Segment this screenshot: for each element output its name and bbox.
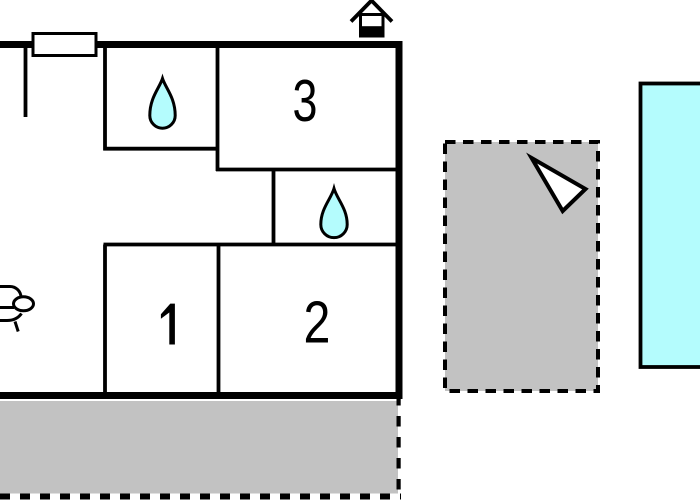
- svg-text:3: 3: [293, 69, 318, 134]
- svg-text:2: 2: [304, 290, 331, 356]
